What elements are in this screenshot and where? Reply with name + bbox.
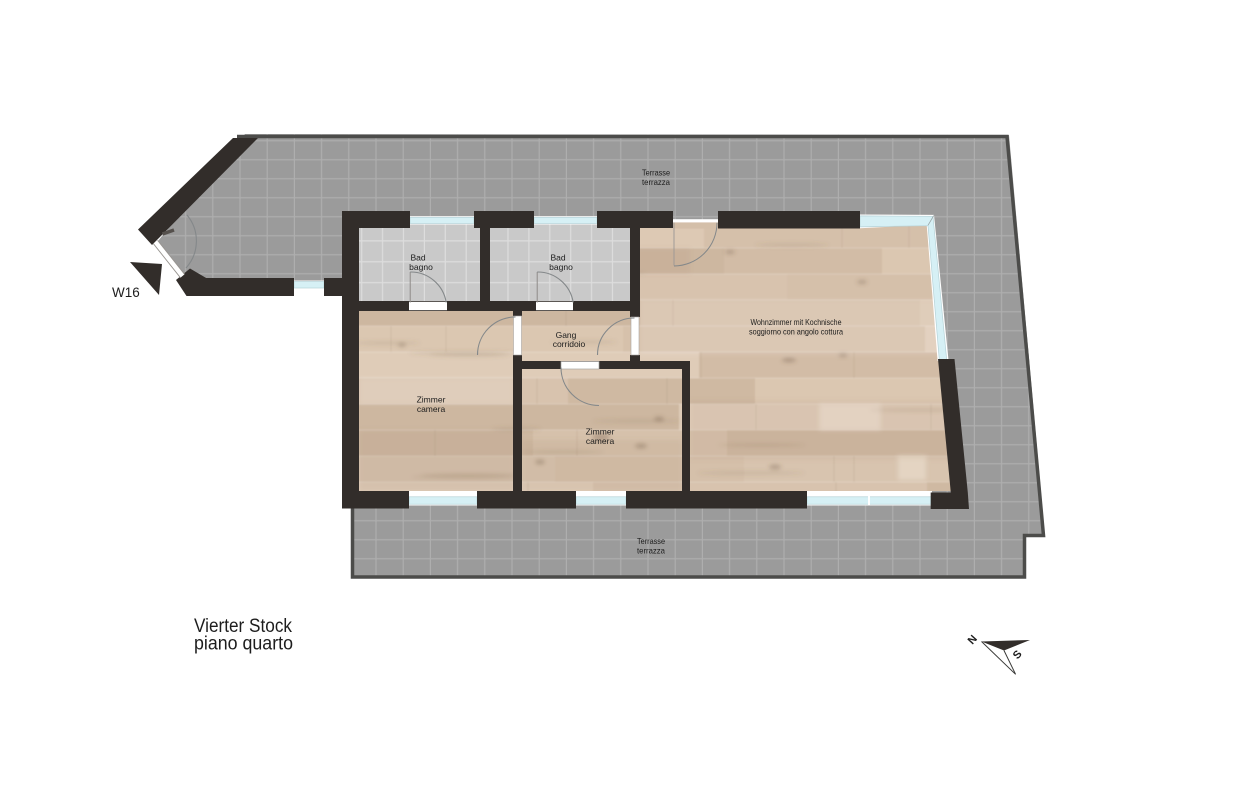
svg-text:Zimmer: Zimmer: [417, 395, 446, 405]
svg-text:piano quarto: piano quarto: [194, 634, 293, 655]
svg-text:terrazza: terrazza: [642, 177, 670, 187]
svg-text:soggiorno con angolo cottura: soggiorno con angolo cottura: [749, 327, 843, 337]
svg-text:Zimmer: Zimmer: [586, 427, 615, 437]
svg-text:camera: camera: [417, 404, 446, 414]
svg-text:N: N: [966, 633, 980, 647]
svg-text:Wohnzimmer mit Kochnische: Wohnzimmer mit Kochnische: [751, 317, 842, 327]
svg-text:terrazza: terrazza: [637, 546, 665, 556]
svg-text:Bad: Bad: [550, 253, 565, 263]
svg-text:corridoio: corridoio: [553, 339, 586, 349]
svg-text:W16: W16: [112, 285, 140, 300]
svg-text:camera: camera: [586, 436, 615, 446]
svg-text:Terrasse: Terrasse: [642, 168, 670, 178]
svg-text:Terrasse: Terrasse: [637, 536, 665, 546]
svg-text:bagno: bagno: [409, 262, 433, 272]
svg-text:Bad: Bad: [410, 253, 425, 263]
svg-text:S: S: [1011, 648, 1025, 661]
svg-text:bagno: bagno: [549, 262, 573, 272]
